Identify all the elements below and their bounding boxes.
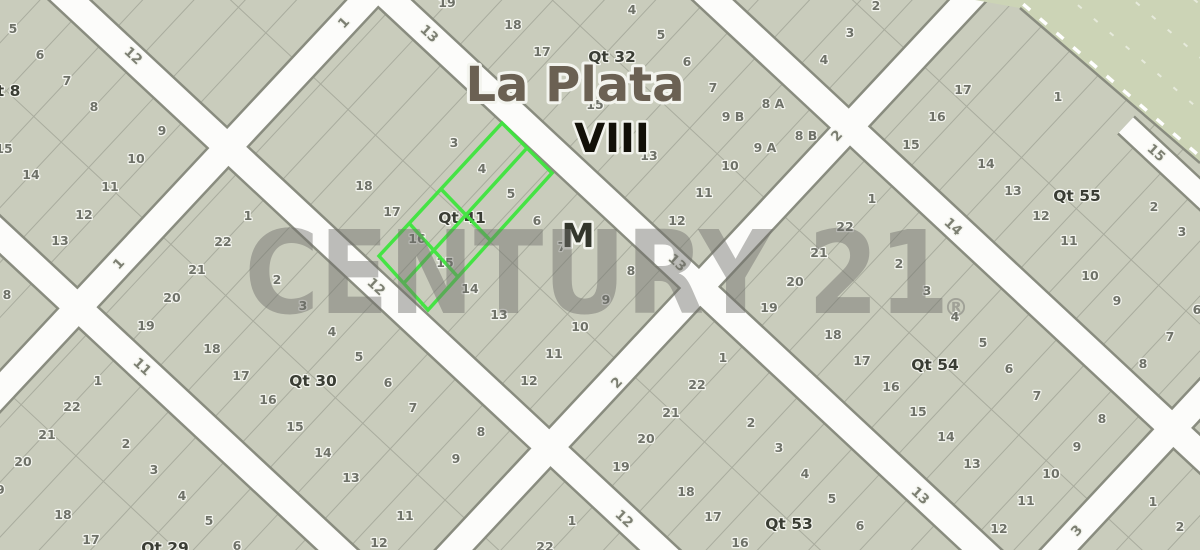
lot-number: 18 [677,484,694,499]
lot-number: 3 [846,25,855,40]
lot-number: 3 [150,462,159,477]
block-label: Qt 55 [1053,187,1101,205]
lot-number: 16 [731,535,749,550]
block-label: Qt 30 [289,372,337,390]
lot-number: 7 [63,73,72,88]
lot-number: 22 [688,377,705,392]
lot-number: 5 [507,186,516,201]
lot-number: 12 [75,207,92,222]
lot-number: 17 [704,509,721,524]
lot-number: 6 [1005,361,1014,376]
lot-number: 5 [9,21,18,36]
lot-number: 17 [954,82,971,97]
lot-number: 1 [868,191,877,206]
lot-number: 18 [355,178,372,193]
lot-number: 20 [14,454,32,469]
lot-number: 5 [205,513,214,528]
lot-number: 1 [568,513,577,528]
lot-number: 12 [370,535,387,550]
lot-number: 5 [828,491,837,506]
lot-number: 5 [355,349,364,364]
lot-number: 12 [990,521,1007,536]
lot-number: 10 [127,151,145,166]
lot-number: 7 [1033,388,1042,403]
lot-number: 20 [637,431,655,446]
lot-number: 8 [477,424,486,439]
lot-number: 19 [137,318,154,333]
lot-number: 4 [478,161,487,176]
lot-number: 14 [937,429,955,444]
block-label: Qt 53 [765,515,813,533]
lot-number: 6 [384,375,393,390]
lot-number: 18 [54,507,71,522]
registered-trademark-icon: ® [944,293,969,322]
lot-number: 6 [856,518,865,533]
lot-number: 20 [163,290,181,305]
lot-number: 9 A [754,140,777,155]
lot-number: 13 [1004,183,1021,198]
lot-number: 1 [1149,494,1158,509]
lot-number: 6 [36,47,45,62]
lot-number: 22 [63,399,80,414]
lot-number: 4 [178,488,187,503]
lot-number: 19 [0,482,5,497]
lot-number: 2 [122,436,131,451]
lot-number: 11 [1060,233,1077,248]
lot-number: 12 [520,373,537,388]
lot-number: 9 B [722,109,745,124]
lot-number: 7 [1166,329,1175,344]
lot-number: 16 [259,392,277,407]
lot-number: 13 [963,456,980,471]
lot-number: 3 [775,440,784,455]
lot-number: 2 [872,0,881,13]
lot-number: 8 [90,99,99,114]
lot-number: 3 [1178,224,1187,239]
lot-number: 21 [188,262,205,277]
lot-number: 14 [977,156,995,171]
lot-number: 5 [657,27,666,42]
map-image: 567891011121314158191817151345679 B8 A9 … [0,0,1200,550]
lot-number: 8 [1098,411,1107,426]
lot-number: 18 [504,17,521,32]
section-title: VIII [574,116,650,162]
lot-number: 17 [853,353,870,368]
lot-number: 17 [82,532,99,547]
lot-number: 10 [1042,466,1060,481]
lot-number: 5 [979,335,988,350]
lot-number: 9 [452,451,461,466]
lot-number: 19 [438,0,455,10]
lot-number: 18 [203,341,220,356]
lot-number: 8 B [795,128,818,143]
lot-number: 13 [342,470,359,485]
lot-number: 9 [158,123,167,138]
lot-number: 7 [409,400,418,415]
lot-number: 1 [94,373,103,388]
lot-number: 8 A [762,96,785,111]
watermark: CENTURY 21® [245,207,969,341]
lot-number: 12 [1032,208,1049,223]
lot-number: 2 [1176,519,1185,534]
lot-number: 8 [3,287,12,302]
lot-number: 21 [662,405,679,420]
lot-number: 4 [820,52,829,67]
lot-number: 11 [396,508,413,523]
lot-number: 16 [928,109,946,124]
lot-number: 7 [709,80,718,95]
lot-number: 17 [232,368,249,383]
lot-number: 9 [1073,439,1082,454]
lot-number: 11 [101,179,118,194]
lot-number: 9 [1113,293,1122,308]
lot-number: 6 [1193,302,1200,317]
lot-number: 15 [0,141,13,156]
lot-number: 22 [536,539,553,550]
lot-number: 19 [612,459,629,474]
lot-number: 6 [233,538,242,550]
lot-number: 10 [1081,268,1099,283]
lot-number: 15 [909,404,926,419]
lot-number: 11 [545,346,562,361]
lot-number: 14 [314,445,332,460]
lot-number: 4 [801,466,810,481]
lot-number: 16 [882,379,900,394]
lot-number: 2 [747,415,756,430]
block-label: Qt 8 [0,82,20,100]
lot-number: 21 [38,427,55,442]
block-label: Qt 29 [141,539,189,550]
lot-number: 1 [719,350,728,365]
lot-number: 11 [1017,493,1034,508]
lot-number: 15 [902,137,919,152]
lot-number: 10 [721,158,739,173]
cadastral-map: 567891011121314158191817151345679 B8 A9 … [0,0,1200,550]
watermark-text: CENTURY 21 [245,207,950,341]
lot-number: 4 [628,2,637,17]
lot-number: 14 [22,167,40,182]
city-title: La Plata [465,57,684,113]
lot-number: 15 [286,419,303,434]
lot-number: 11 [695,185,712,200]
lot-number: 8 [1139,356,1148,371]
lot-number: 13 [51,233,68,248]
block-label: Qt 54 [911,356,959,374]
lot-number: 3 [450,135,459,150]
lot-number: 1 [1054,89,1063,104]
lot-number: 22 [214,234,231,249]
lot-number: 2 [1150,199,1159,214]
